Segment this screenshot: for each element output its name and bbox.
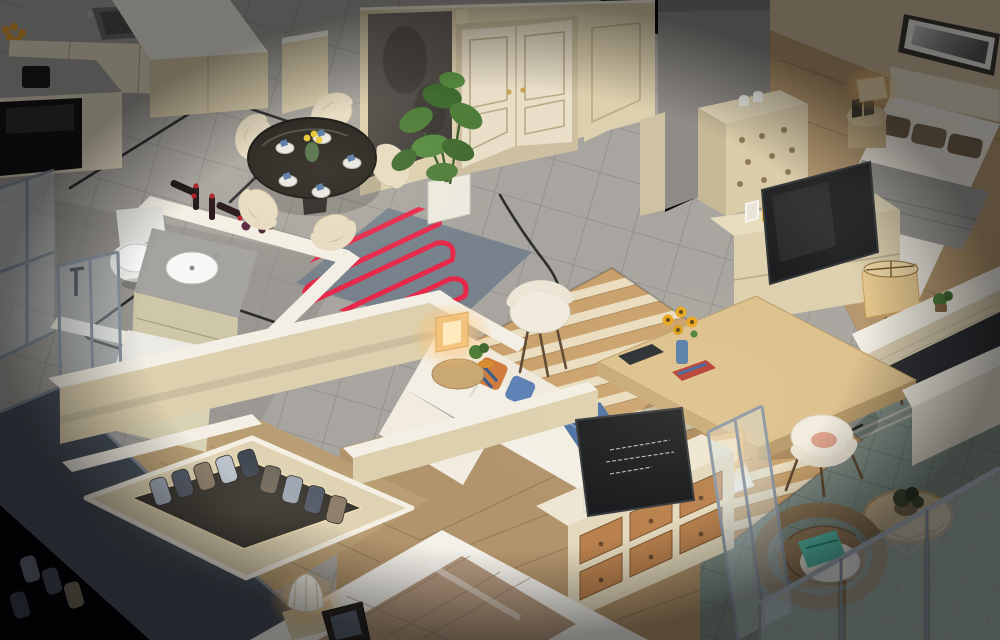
apartment-render: [0, 0, 1000, 640]
vignette: [0, 0, 1000, 640]
